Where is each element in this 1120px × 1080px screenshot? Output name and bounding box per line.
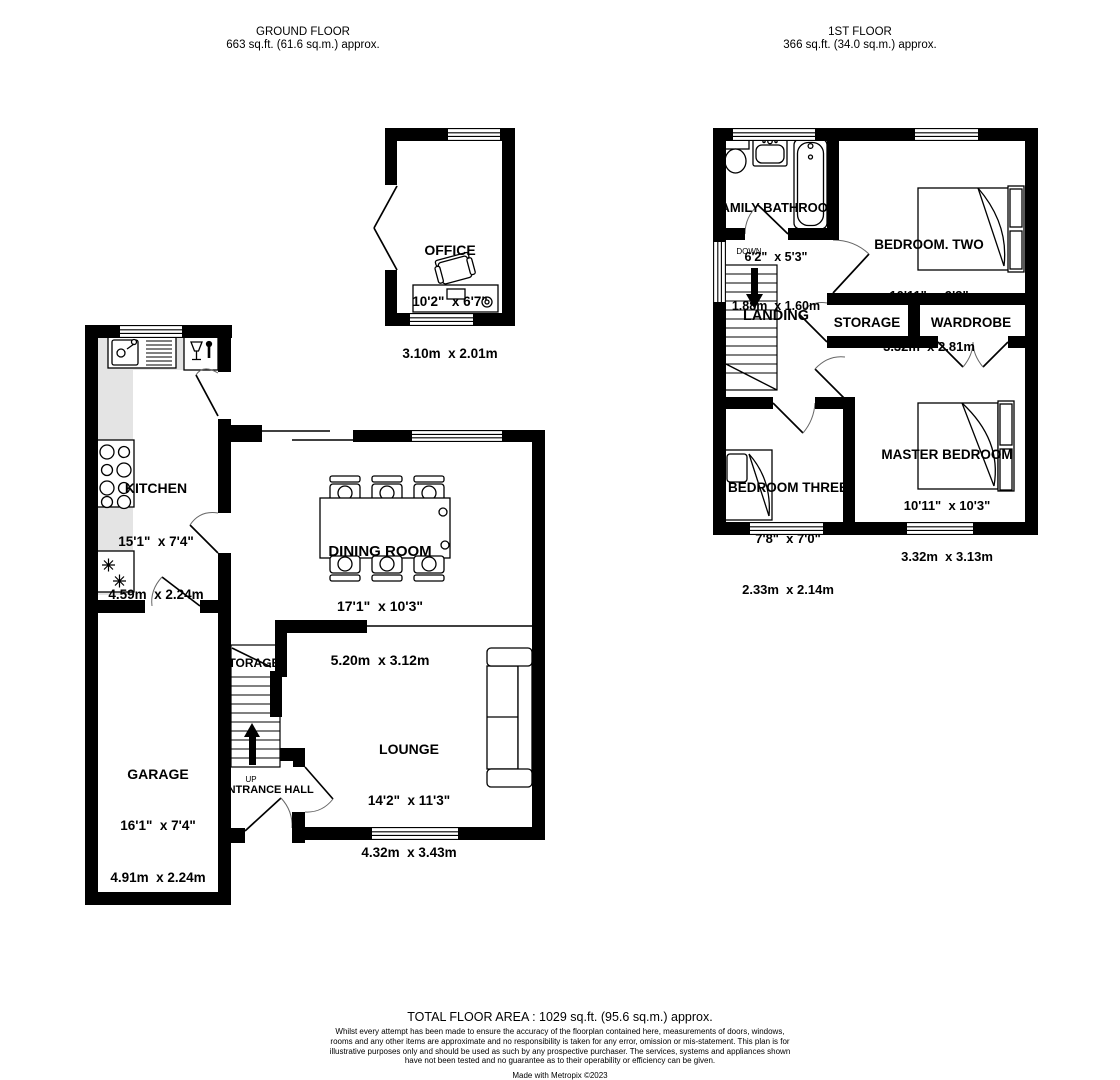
bedroom-three-label: BEDROOM THREE 7'8" x 7'0" 2.33m x 2.14m xyxy=(728,444,848,633)
ground-floor-header: GROUND FLOOR 663 sq.ft. (61.6 sq.m.) app… xyxy=(226,26,379,52)
labels-layer: GROUND FLOOR 663 sq.ft. (61.6 sq.m.) app… xyxy=(0,0,1120,1080)
ground-floor-area: 663 sq.ft. (61.6 sq.m.) approx. xyxy=(226,39,379,52)
total-floor-area: TOTAL FLOOR AREA : 1029 sq.ft. (95.6 sq.… xyxy=(407,1010,712,1024)
storage-first-label: STORAGE xyxy=(834,315,901,330)
first-floor-title: 1ST FLOOR xyxy=(783,26,936,39)
master-bedroom-label: MASTER BEDROOM 10'11" x 10'3" 3.32m x 3.… xyxy=(881,411,1012,600)
office-label: OFFICE 10'2" x 6'7" 3.10m x 2.01m xyxy=(402,206,497,398)
bedroom-two-label: BEDROOM. TWO 10'11" x 9'3" 3.32m x 2.81m xyxy=(874,201,984,390)
disclaimer-text: Whilst every attempt has been made to en… xyxy=(325,1027,795,1066)
up-label: UP xyxy=(245,775,256,784)
ground-floor-title: GROUND FLOOR xyxy=(226,26,379,39)
madewith-text: Made with Metropix ©2023 xyxy=(512,1071,607,1080)
kitchen-label: KITCHEN 15'1" x 7'4" 4.59m x 2.24m xyxy=(108,444,203,639)
landing-label: LANDING xyxy=(743,308,809,324)
first-floor-area: 366 sq.ft. (34.0 sq.m.) approx. xyxy=(783,39,936,52)
garage-label: GARAGE 16'1" x 7'4" 4.91m x 2.24m xyxy=(110,730,205,922)
floorplan-canvas: GROUND FLOOR 663 sq.ft. (61.6 sq.m.) app… xyxy=(0,0,1120,1080)
storage-ground-label: STORAGE xyxy=(220,656,279,670)
first-floor-header: 1ST FLOOR 366 sq.ft. (34.0 sq.m.) approx… xyxy=(783,26,936,52)
lounge-label: LOUNGE 14'2" x 11'3" 4.32m x 3.43m xyxy=(361,705,456,897)
wardrobe-label: WARDROBE xyxy=(931,315,1011,330)
down-label: DOWN xyxy=(736,247,761,256)
entrance-hall-label: ENTRANCE HALL xyxy=(220,784,314,796)
dining-room-label: DINING ROOM 17'1" x 10'3" 5.20m x 3.12m xyxy=(328,507,431,705)
